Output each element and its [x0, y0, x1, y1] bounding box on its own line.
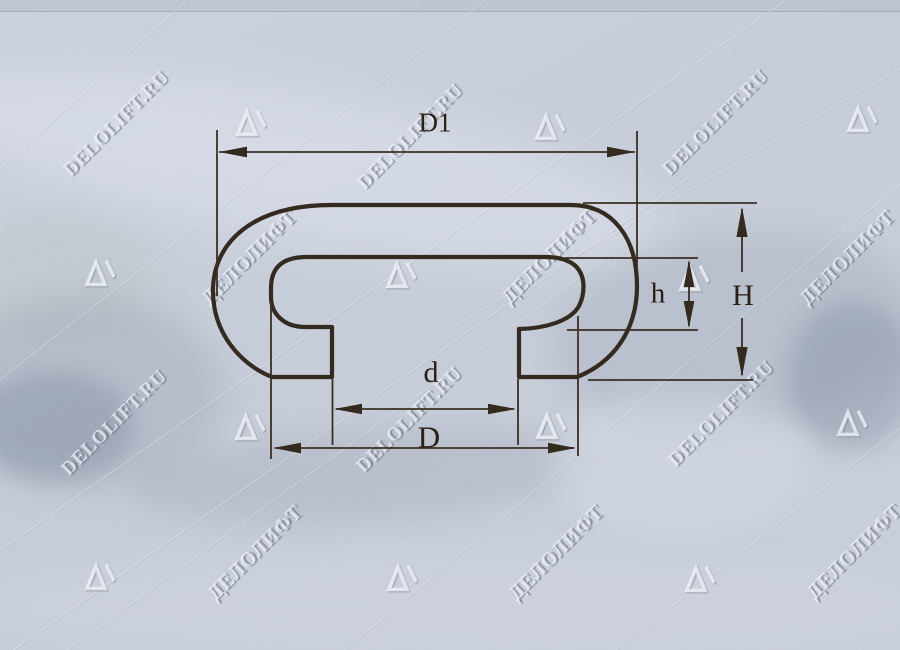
arrowhead-right — [488, 404, 516, 415]
arrowhead-right — [548, 443, 576, 454]
scanned-diagram-page: DELOLIFT.RUDELOLIFT.RUDELOLIFT.RUDELOLIF… — [0, 0, 900, 650]
arrowhead-left — [334, 404, 362, 415]
handrail-profile-outline — [213, 205, 637, 377]
arrowhead-up — [736, 207, 747, 237]
arrowhead-down — [736, 347, 747, 377]
handrail-profile-drawing — [0, 0, 900, 650]
dimension-label-H: H — [732, 281, 754, 311]
arrowhead-right — [607, 147, 635, 158]
dimension-label-d: d — [424, 358, 439, 388]
arrowhead-left — [219, 147, 247, 158]
dimension-H — [583, 203, 757, 380]
arrowhead-up — [684, 260, 695, 287]
arrowhead-down — [684, 301, 695, 328]
dimension-label-D: D — [418, 422, 440, 453]
arrowhead-left — [273, 443, 301, 454]
dimension-label-D1: D1 — [419, 110, 452, 137]
dimension-label-h: h — [651, 280, 666, 309]
